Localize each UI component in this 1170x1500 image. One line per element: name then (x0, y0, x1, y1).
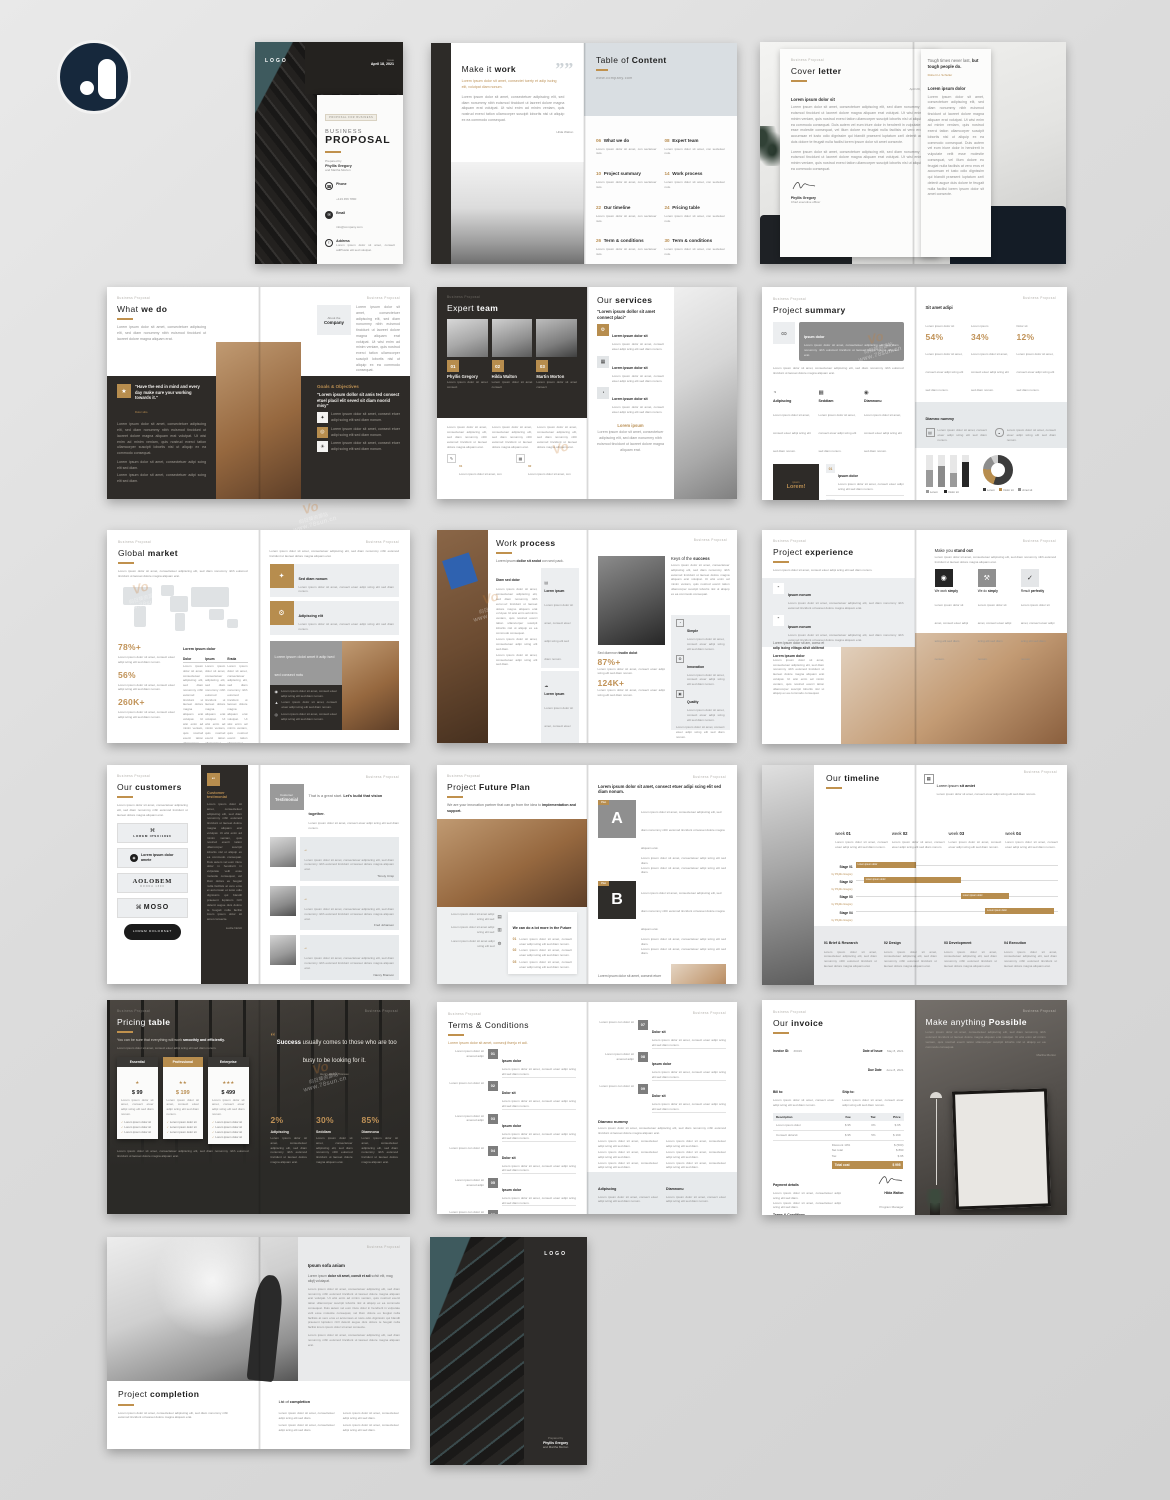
person-icon: ◉ (275, 689, 279, 699)
pricing-stat-text: Lorem ipsum dolor sit amet, consectetuer… (316, 1136, 353, 1165)
completion-side-body2: Lorem ipsum dolor sit amet, consectetuer… (308, 1333, 400, 1347)
desk-wood-photo (437, 530, 488, 743)
page-header: Business Proposal (926, 296, 1057, 300)
plan-card-professional[interactable]: Professional ★★ $ 199 Lorem ipsum dolor … (163, 1057, 204, 1139)
page-our-customers: Business Proposal Our customers Lorem ip… (107, 765, 259, 984)
wwd-quote-author: Dolor sitio (135, 410, 147, 414)
experience-title-thin: Project (773, 547, 805, 557)
plant-shape (760, 126, 780, 166)
stars-icon: ★★ (179, 1080, 187, 1085)
standout-intro: Lorem ipsum dolor sit amet, consectetuer… (935, 555, 1056, 565)
testimonial-tag: Customer Testimonial (270, 784, 304, 810)
hands-photo (671, 964, 726, 984)
testimonial-row: “ Lorem ipsum dolor sit amet, consectetu… (270, 886, 400, 930)
team-col-text: Lorem ipsum dolor sit amet, consectetuer… (537, 425, 577, 449)
phase-title: 01 Brief & Research (824, 941, 858, 945)
invoice-tnc-label: Terms & Conditions (773, 1213, 841, 1215)
page-invoice: Business Proposal Our invoice Invoice ID… (762, 1000, 915, 1215)
member-photo (536, 319, 577, 357)
page-header: Business Proposal (598, 775, 726, 779)
phase-text: Lorem ipsum dolor sit amet, consectetuer… (944, 950, 997, 969)
plan-bullet: Lorem ipsum dolor sit amet, consectetuer… (641, 947, 726, 957)
terms-item: Lorem ipsum dolor sit amered adipi08Ipsu… (598, 1052, 726, 1081)
testimonial-name: Nancy Branson (305, 973, 395, 977)
page-cover[interactable]: LOGO Issue April 18, 2021 PROPOSAL FOR B… (255, 42, 403, 264)
star-icon: ✦ (270, 564, 294, 588)
grid-icon: ▦ (516, 454, 525, 463)
toc-item[interactable]: 24 Pricing tableLorem ipsum dolor sit am… (665, 196, 726, 225)
market-stat: 56% (118, 670, 136, 680)
standout-text: Lorem ipsum dolor sit amet, consect etue… (978, 603, 1012, 661)
interior-photo (598, 556, 666, 645)
key-icon: ✦ (317, 412, 328, 423)
market-stat: 78%+ (118, 642, 141, 652)
client-logo: AOLOBEM DONNA 1890 (117, 873, 188, 893)
desk-photo (674, 287, 737, 499)
page-work-process: Work process Lorem ipsum dollor sit ando… (437, 530, 587, 743)
back-prepared-label: Prepared by (524, 1436, 587, 1440)
spread-what-we-do[interactable]: Business Proposal What we do Lorem ipsum… (107, 287, 410, 499)
spread-invoice[interactable]: Business Proposal Our invoice Invoice ID… (762, 1000, 1067, 1215)
panel-item-text: Lorem ipsum dolor sit amet, consect etue… (281, 700, 337, 710)
brand-logo-mark-icon (98, 59, 116, 99)
briefcase-icon: ▤ (926, 428, 935, 437)
testimonial-text: Lorem ipsum dolor sit amet, consectetuer… (305, 858, 395, 872)
item-number: 02 (826, 499, 835, 500)
about-company-box: About the Company (317, 305, 351, 335)
service-text: Lorem ipsum dolor sit amet, consect etue… (612, 374, 664, 384)
terms-item: Lorem ipsum con dolor sit04Dolor sitLore… (448, 1146, 576, 1175)
member-photo (447, 319, 488, 357)
office-photo (451, 162, 584, 264)
pricing-stat: 30% (316, 1115, 334, 1125)
client-logo: ◉ Lorem ipsum dolor amete (117, 848, 188, 868)
toc-item[interactable]: 22 Our timelineLorem ipsum dolor sit ame… (596, 196, 657, 225)
testimonial-photo (270, 935, 296, 965)
plan-bullet: Lorem ipsum dolor sit amet, consectetuer… (641, 866, 726, 876)
growth-icon: ▲ (275, 700, 279, 710)
spread-project-summary[interactable]: Business Proposal Project summary ∞ Ipsu… (762, 287, 1067, 500)
market-title-thin: Global (118, 548, 148, 558)
address-icon: ⚐ (325, 239, 333, 247)
invoice-table: DescriptionFeeTaxPrice Lorem ipsum dolor… (773, 1113, 904, 1169)
bill-to-label: Bill to: (773, 1090, 783, 1094)
gantt-chart: Stage 01by Phyllis Gregory Lorem ipsum d… (820, 857, 1058, 919)
stopwatch-icon: ◉ (935, 569, 953, 587)
member-number: 01 (447, 360, 459, 372)
quote-author: Henry David Thoreau (271, 1072, 399, 1076)
page-header: Business Proposal (448, 1012, 576, 1016)
team-foot-text: Lorem ipsum dolor sit amet, con (459, 472, 502, 477)
process-bullet: Lorem ipsum dolor sit amet, consectetuer… (496, 637, 537, 651)
brand-logo-dot-icon (80, 81, 94, 95)
page-pricing: Business Proposal Pricing table You can … (107, 1000, 259, 1214)
toc-header-band: Table of Content www.company.com (584, 43, 737, 116)
pricing-stat: 2% (271, 1115, 284, 1125)
spread-team-services[interactable]: Business Proposal Expert team 01 Phyllis… (437, 287, 737, 499)
portfolio-canvas: LOGO Issue April 18, 2021 PROPOSAL FOR B… (0, 0, 1170, 1500)
pricing-title-bold: table (149, 1017, 171, 1027)
trophy-icon: ★ (117, 384, 131, 398)
pricing-stat: 85% (362, 1115, 380, 1125)
summary-bar-text: Lorem ipsum dolor sit amet, consectetuer… (804, 343, 899, 357)
terms-item: Lorem ipsum con dolor sit07Dolor sitLore… (598, 1020, 726, 1049)
spread-project-experience[interactable]: Business Proposal Project experience Lor… (762, 530, 1067, 744)
page-header: Business Proposal (791, 58, 928, 62)
future-card-text: Lorem ipsum dolor sit amet, consect etue… (519, 948, 572, 958)
clock-icon: ◔ (676, 619, 684, 627)
about-text: Lorem ipsum dolor sit amet, consectetuer… (356, 305, 400, 374)
page-future-plan: Business Proposal Project Future Plan We… (437, 765, 587, 984)
market-right-intro: Lorem ipsum dolor sit amet, consectetuer… (270, 549, 400, 559)
plan-card-enterprise[interactable]: Enterprise ★★★ $ 499 Lorem ipsum dolor s… (208, 1057, 249, 1144)
future-card-text: Lorem ipsum dolor sit amet, consect etue… (519, 960, 572, 970)
bulb-icon: ☀ (317, 441, 328, 452)
market-intro: Lorem ipsum dolor sit amet, consectetuer… (118, 569, 248, 579)
letter-sign-role: Chief executive officer (791, 200, 928, 205)
spread-our-customers[interactable]: Business Proposal Our customers Lorem ip… (107, 765, 410, 984)
wwd-bullet: Lorem ipsum dolor sit amet, consectetuer… (117, 473, 206, 485)
signature-squiggle (791, 179, 817, 191)
spread-our-timeline[interactable]: Our timeline ▦ Lorem ipsum sit amiet Lor… (762, 765, 1067, 985)
testimonial-row: “ Lorem ipsum dolor sit amet, consectetu… (270, 837, 400, 881)
intro-title-bold: work (495, 64, 516, 74)
letter-sub: Lorem ipsum dolor (928, 86, 984, 91)
bar-chart: Lorem Dolor sit (926, 455, 969, 494)
page-header: Business Proposal (117, 774, 188, 778)
panel-author: Lucile Nolcit (207, 926, 242, 931)
services-footer-title: Lorem ipsum (597, 423, 664, 428)
timeline-note-text: Lorem ipsum dolor sit amet, consect etue… (937, 792, 1058, 797)
back-dark-panel: LOGO Prepared by Phyllis Gregory and Mar… (524, 1237, 587, 1465)
phase-title: 02 Design (884, 941, 901, 945)
page-header: Business Proposal (270, 540, 400, 544)
member-photo (492, 319, 533, 357)
page-expert-team: Business Proposal Expert team 01 Phyllis… (437, 287, 587, 499)
laptop-screen-shape (442, 552, 478, 589)
phase-text: Lorem ipsum dolor sit amet, consectetuer… (1004, 950, 1057, 969)
terms-item: Lorem ipsum con dolor sit06Dolor sitLore… (448, 1210, 576, 1214)
band-text: Lorem ipsum dolor sit amet, consect etue… (1007, 428, 1056, 442)
page-header: Business Proposal (773, 297, 904, 301)
goal-text: Lorem ipsum dolor sit amet, consect etue… (331, 427, 400, 439)
key-text: Lorem ipsum dolor sit amet, consect etue… (687, 673, 725, 687)
experience-intro: Lorem ipsum dolor sit amet, consect etue… (773, 568, 904, 573)
folder-icon: ▤ (544, 580, 548, 585)
page-terms-left: Business Proposal Terms & Conditions Lor… (437, 1002, 587, 1214)
chart-icon: ▥ (497, 927, 501, 933)
testimonial-intro: Lorem ipsum dolor sit amet, consect etue… (309, 821, 400, 831)
pricing-intro: Lorem ipsum dolor sit amet, consect etue… (117, 1046, 249, 1051)
badge-icon: ▣ (676, 690, 684, 698)
week-text: Lorem ipsum dolor sit amet, consect etue… (892, 840, 945, 850)
summary-col-text: Lorem ipsum dolor sit amet, consect etue… (773, 413, 811, 453)
toc-item[interactable]: 14 Work processLorem ipsum dolor sit ame… (665, 162, 726, 191)
stars-icon: ★★★ (222, 1080, 234, 1085)
page-header: Business Proposal (117, 296, 206, 300)
lamp-head-shape (930, 1092, 942, 1098)
world-map (118, 583, 248, 635)
completion-intro: Lorem ipsum dolor sit amet, consectetuer… (118, 1411, 228, 1421)
thumbs-up-icon: ✓ (1021, 569, 1039, 587)
completion-side-body: Lorem ipsum dolor sit amet, consectetuer… (308, 1287, 400, 1330)
summary-right-head: Sit amet adipi (926, 305, 1057, 310)
toc-site: www.company.com (596, 76, 725, 82)
page-make-it-work: ”” Make it work Lorem ipsum dolor sit am… (431, 43, 584, 264)
process-card-text: Lorem ipsum dolor sit amet, consect etue… (544, 706, 573, 743)
services-title-thin: Our (597, 295, 615, 305)
page-header: Business Proposal (447, 295, 577, 299)
process-bullet: Lorem ipsum dolor sit amet, consectetuer… (496, 653, 537, 667)
experience-bottom-text: Lorem ipsum dolor sit amet, consectetuer… (773, 658, 824, 696)
spread-future-plan[interactable]: Business Proposal Project Future Plan We… (437, 765, 737, 984)
toc-item[interactable]: 06 What we doLorem ipsum dolor sit amet,… (596, 129, 657, 158)
summary-intro: Lorem ipsum dolor sit amet, consectetuer… (773, 366, 904, 376)
possible-title-thin: Make anything (926, 1017, 989, 1027)
stat-text: Lorem ipsum dolor sit amet, consect etue… (926, 352, 964, 392)
gantt-bar: Lorem ipsum dolor (985, 908, 1054, 914)
invoice-title-thin: Our (773, 1018, 791, 1028)
testimonial-photo (270, 837, 296, 867)
timeline-title-bold: timeline (844, 773, 879, 783)
phase-title: 04 Execution (1004, 941, 1026, 945)
toc-title-bold: Content (632, 55, 667, 65)
team-col-text: Lorem ipsum dolor sit amet, consectetuer… (492, 425, 532, 449)
side-strip (431, 43, 451, 264)
page-header: Business Proposal (926, 1009, 1057, 1013)
goal-text: Lorem ipsum dolor sit amet, consect etue… (331, 412, 400, 424)
gear-icon: ⚙ (676, 655, 684, 663)
card-text: Lorem ipsum dolor sit amet, consect etue… (299, 622, 395, 632)
testimonial-photo (270, 886, 296, 916)
spread-completion[interactable]: Business Proposal Ipsum sofa aniam Lorem… (107, 1237, 410, 1449)
experience-item-text: Lorem ipsum dolor sit amet, consectetuer… (788, 601, 904, 611)
quote-marks-icon: ”” (555, 59, 573, 80)
terms-foot-text: Lorem ipsum dolor sit amet, consect etue… (598, 1195, 658, 1205)
completion-title-bold: completion (150, 1389, 199, 1399)
future-card-head: We can do a lot more in the Future (513, 926, 572, 930)
letter-quote-thin: Tough times never last, (928, 58, 972, 63)
back-logo-text: LOGO (532, 1251, 579, 1257)
market-stat-text: Lorem ipsum dolor sit amet, consect etue… (118, 710, 175, 720)
gear-icon: ⚙ (270, 601, 294, 625)
process-title-bold: process (520, 538, 555, 548)
stars-icon: ★ (135, 1080, 139, 1085)
page-header: Business Proposal (271, 1009, 399, 1013)
client-logo: ⌘ MOSO (117, 898, 188, 918)
letter-title-bold: letter (818, 66, 841, 76)
toc-item[interactable]: 08 Expert teamLorem ipsum dolor sit amet… (665, 129, 726, 158)
plan-card-essential[interactable]: Essential ★ $ 99 Lorem ipsum dolor sit a… (117, 1057, 158, 1139)
spread-pricing[interactable]: Business Proposal Pricing table You can … (107, 1000, 410, 1214)
phase-text: Lorem ipsum dolor sit amet, consectetuer… (884, 950, 937, 969)
page-header: Business Proposal (773, 1010, 904, 1014)
completion-title-thin: Project (118, 1389, 150, 1399)
intro-author: Hilda Walton (462, 130, 574, 135)
toc-item[interactable]: 30 Term & conditionsLorem ipsum dolor si… (665, 229, 726, 258)
summary-num-text: Lorem ipsum dolor sit amet, consect etue… (838, 482, 904, 492)
pie-icon: ◔ (773, 390, 776, 396)
intro-lead: Lorem ipsum dolor sit amet, consectet tu… (462, 79, 557, 91)
page-market-right: Business Proposal Lorem ipsum dolor sit … (259, 530, 411, 743)
service-text: Lorem ipsum dolor sit amet, consect etue… (612, 342, 664, 352)
panel-item-text: Lorem ipsum dolor sit amet, consect etue… (281, 712, 337, 722)
grid-icon: ▦ (819, 390, 824, 396)
standout-text: Lorem ipsum dolor sit amet, consect etue… (1021, 603, 1055, 661)
invoice-total-bar: Total cost$ 995 (832, 1161, 904, 1169)
pricing-stat-text: Lorem ipsum dolor sit amet, consectetuer… (362, 1136, 399, 1165)
testimonial-name: Fred Johansen (305, 923, 395, 927)
spread-global-market[interactable]: Business Proposal Global market Lorem ip… (107, 530, 410, 743)
completion-side-head: Ipsum sofa aniam (308, 1263, 345, 1268)
team-foot-text: Lorem ipsum dolor sit amet, con (528, 472, 571, 477)
email-icon: ✉ (325, 211, 333, 219)
page-keys-success: Business Proposal Sed diamnon trudin dol… (587, 530, 737, 743)
market-stat-text: Lorem ipsum dolor sit amet, consect etue… (118, 655, 175, 665)
letter-quote-author: Robert H. Schuller (928, 73, 984, 78)
card-text: Lorem ipsum dolor sit amet, consect etue… (299, 585, 395, 595)
wwd-title-bold: we do (141, 304, 167, 314)
page-testimonials: Business Proposal Customer Testimonial T… (259, 765, 411, 984)
gear-icon: ⚙ (498, 941, 502, 947)
spread-cover-letter[interactable]: Business Proposal Cover letter April 20,… (760, 42, 1066, 264)
toc-item[interactable]: 26 Term & conditionsLorem ipsum dolor si… (596, 229, 657, 258)
dot-logo-icon: ◉ (130, 854, 138, 862)
glasses-icon: ∞ (773, 322, 795, 344)
donut-chart: Lorem Dolor sit Amet sit (983, 455, 1033, 494)
watermark: Vo 向日葵资源站 www.78sun.cn (287, 494, 338, 534)
letter-body2: Lorem ipsum dolor sit amet, consectetuer… (791, 150, 928, 173)
invoice-id: #0029 (794, 1049, 802, 1053)
terms-lead: Lorem ipsum dolor sit amet, consecji fis… (448, 1041, 576, 1045)
week-text: Lorem ipsum dolor sit amet, consect etue… (835, 840, 888, 850)
terms-title: Terms & Conditions (448, 1021, 576, 1030)
future-title-thin: Project (447, 782, 479, 792)
summary-title-bold: summary (805, 305, 846, 315)
standout-text: Lorem ipsum dolor sit amet, consect etue… (935, 603, 969, 661)
client-logo: ⌘ LOREM IPSU/1890 (117, 823, 188, 843)
panel-title: Customer testimonial (207, 791, 242, 799)
terms-item: Lorem ipsum dolor sit amered adipi05Ipsu… (448, 1178, 576, 1207)
quote-mark-icon: “ (271, 1031, 276, 1043)
plan-b-box: Plan B (598, 881, 636, 919)
member-role: Lorem ipsum dolor sit amet consect (536, 380, 577, 390)
team-meeting-photo (437, 819, 587, 907)
page-plans: Business Proposal Lorem ipsum dolor sit … (587, 765, 737, 984)
cover-contact-address: ⚐ Address Lorem ipsum dolor sit amet, co… (325, 239, 395, 253)
process-stat: 124K+ (598, 678, 666, 688)
page-summary-left: Business Proposal Project summary ∞ Ipsu… (762, 287, 915, 500)
spread-terms[interactable]: Business Proposal Terms & Conditions Lor… (437, 1002, 737, 1214)
timeline-title-thin: Our (826, 773, 844, 783)
letter-date: April 20, 2021 (791, 87, 928, 92)
testimonial-row: “ Lorem ipsum dolor sit amet, consectetu… (270, 935, 400, 979)
letter-right-panel: Tough times never last, but tough people… (921, 49, 991, 258)
stat-label: Lorem ipsum dolor sit (926, 324, 955, 328)
letter-title-thin: Cover (791, 66, 818, 76)
goal-text: Lorem ipsum dolor sit amet, consect etue… (331, 441, 400, 453)
wwd-quote: "Have the end in mind and every day make… (135, 384, 206, 400)
page-header: Business Proposal (117, 1009, 249, 1013)
refresh-icon: ◔ (597, 387, 609, 399)
plan-bullet: Lorem ipsum dolor sit amet, consectetuer… (641, 937, 726, 947)
band-title: Diamno nummy (926, 417, 954, 421)
invoice-due-date: June 8, 2021 (886, 1068, 903, 1072)
page-header: Business Proposal (447, 774, 577, 778)
letter-salutation: Lorem ipsum dolor sit (791, 97, 928, 102)
future-title-bold: Future Plan (479, 782, 530, 792)
market-table: Lorem ipsum dolor Dolor Ipsum Erada Lore… (183, 637, 248, 743)
completion-side-panel: Business Proposal Ipsum sofa aniam Lorem… (298, 1237, 410, 1381)
future-card-text: Lorem ipsum dolor sit amet, consect etue… (519, 937, 572, 947)
stat-label: Lorem ipsum (971, 324, 988, 328)
cover-white-panel: PROPOSAL FOR BUSINESS BUSINESS PROPOSAL … (317, 95, 403, 264)
cover-contact-email: ✉ Email info@company.com (325, 211, 395, 233)
customers-intro: Lorem ipsum dolor sit amet, consectetuer… (117, 803, 188, 817)
process-card-text: Lorem ipsum dolor sit amet, consect etue… (544, 603, 573, 661)
pricing-title-thin: Pricing (117, 1017, 149, 1027)
page-toc: Table of Content www.company.com 06 What… (584, 43, 737, 264)
process-stat: 87%+ (598, 657, 666, 667)
gantt-bar: Lorem ipsum dolor (961, 893, 1010, 899)
wwd-bullet: Lorem ipsum dolor sit amet, consectetuer… (117, 460, 206, 472)
page-header: Business Proposal (598, 1011, 726, 1015)
market-stat-text: Lorem ipsum dolor sit amet, consect etue… (118, 683, 175, 693)
page-header: Business Proposal (773, 539, 904, 543)
member-role: Lorem ipsum dolor sit amet consect (492, 380, 533, 390)
panel-item-text: Lorem ipsum dolor sit amet, consect etue… (281, 689, 337, 699)
team-title-thin: Expert (447, 303, 477, 313)
page-header: Business Proposal (317, 296, 400, 300)
toc-item[interactable]: 10 Project summaryLorem ipsum dolor sit … (596, 162, 657, 191)
binoculars-icon: ◎ (317, 427, 328, 438)
intro-body: Lorem ipsum dolor sit amet, consectetuer… (462, 95, 565, 124)
letter-right-body: Lorem ipsum dolor sit amet, consectetuer… (928, 95, 984, 199)
cover-top-bar (305, 42, 403, 94)
gantt-bar: Lorem ipsum dolor (864, 877, 961, 883)
chat-icon: “ (773, 615, 784, 626)
pricing-footnote: Lorem ipsum dolor sit amet, consectetuer… (117, 1149, 249, 1159)
service-text: Lorem ipsum dolor sit amet, consect etue… (612, 405, 664, 415)
workshop-photo (342, 641, 399, 730)
page-back-cover[interactable]: LOGO Prepared by Phyllis Gregory and Mar… (430, 1237, 587, 1465)
possible-body: Lorem ipsum dolor sit amet, consectetuer… (926, 1030, 1046, 1049)
back-name2: and Martha Morton (524, 1445, 587, 1449)
letter-body: Lorem ipsum dolor sit amet, consectetuer… (791, 105, 928, 145)
page-header: Business Proposal (694, 538, 727, 542)
page-pricing-quote: Business Proposal “ Success usually come… (259, 1000, 411, 1214)
cloud-icon: ☁ (544, 683, 548, 688)
member-number: 03 (536, 360, 548, 372)
market-title-bold: market (148, 548, 178, 558)
page-make-anything: Business Proposal Make anything Possible… (915, 1000, 1068, 1215)
possible-title-bold: Possible (989, 1017, 1027, 1027)
page-global-market: Business Proposal Global market Lorem ip… (107, 530, 259, 743)
pencil-icon: ✎ (447, 454, 456, 463)
process-stat-text: Lorem ipsum dolor sit amet, consect etue… (598, 688, 666, 698)
team-title-bold: team (477, 303, 498, 313)
stat-value: 12% (1017, 332, 1057, 342)
invoice-sign-role: Program Manager (879, 1205, 903, 1209)
page-header: Business Proposal (118, 540, 248, 544)
spread-intro-toc[interactable]: ”” Make it work Lorem ipsum dolor sit am… (431, 43, 737, 264)
cover-issue-date: April 18, 2021 (371, 62, 394, 66)
keys-intro: Lorem ipsum dolor sit amet, consectetuer… (671, 563, 730, 597)
stat-value: 54% (926, 332, 966, 342)
terms-item: Lorem ipsum dolor sit amered adipi03Ipsu… (448, 1114, 576, 1143)
spread-work-process[interactable]: Work process Lorem ipsum dollor sit ando… (437, 530, 737, 743)
keys-footnote: Lorem ipsum dolor sit amet, consect etue… (676, 725, 725, 739)
